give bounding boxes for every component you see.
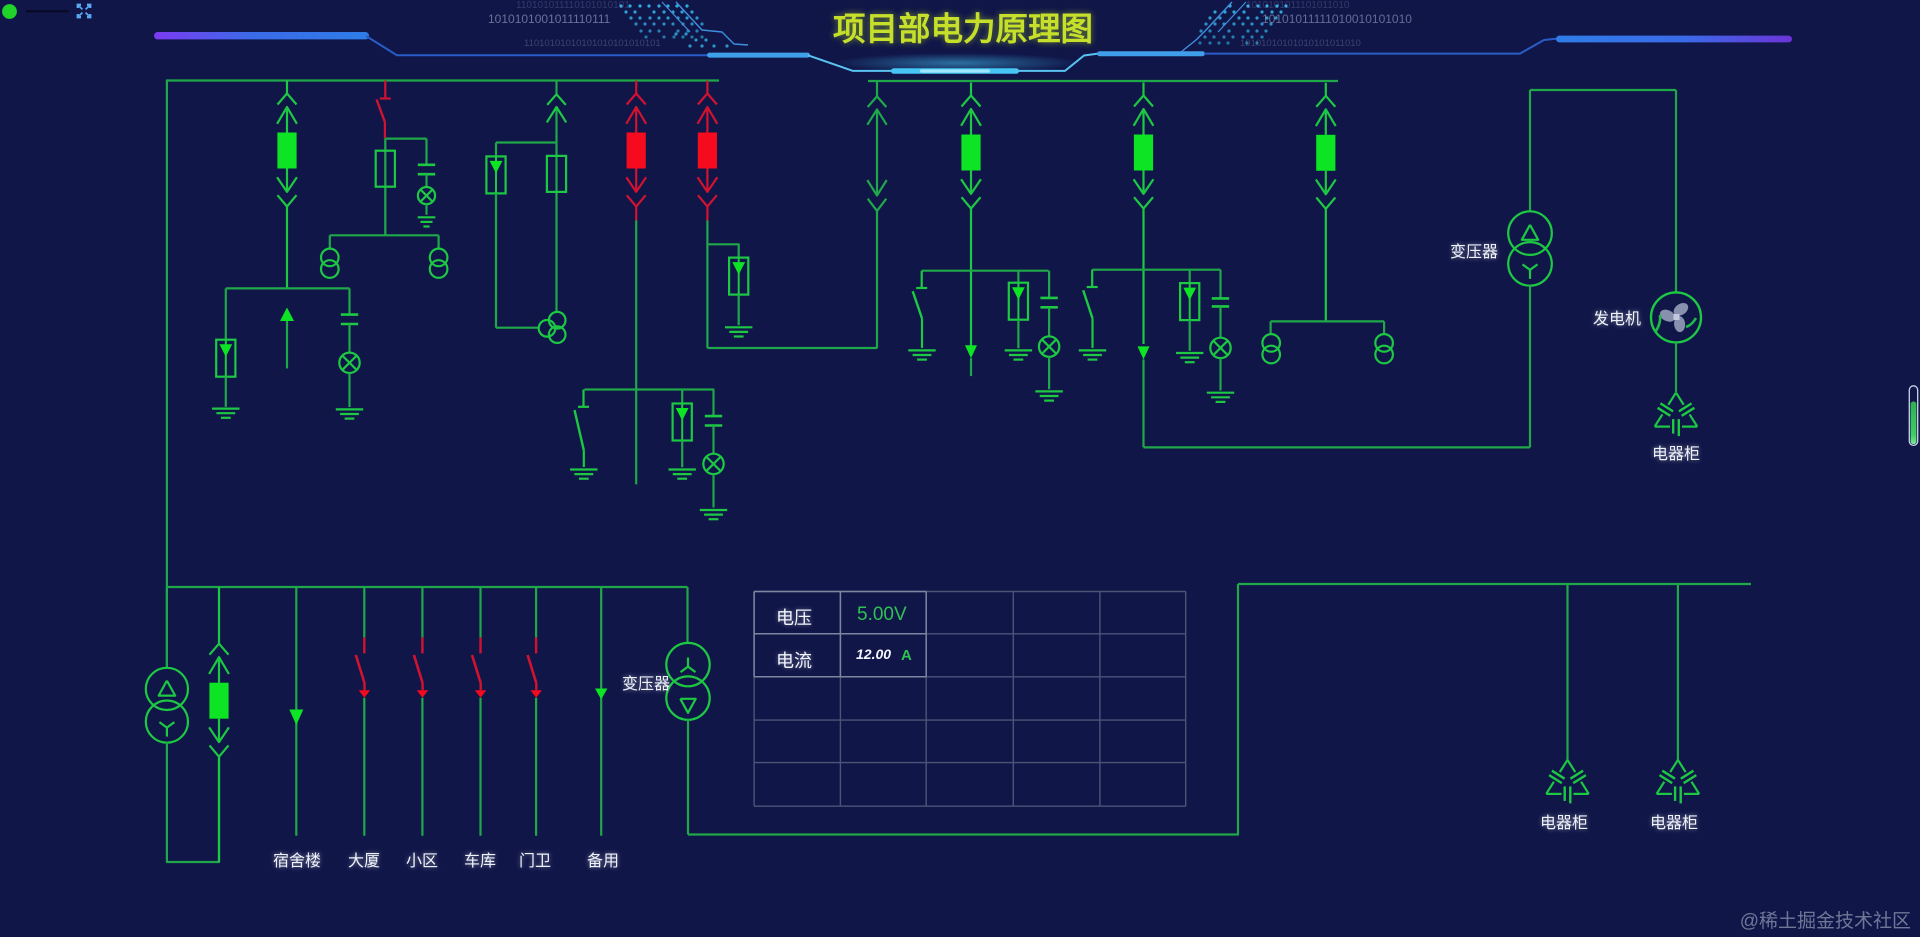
svg-text:A: A <box>901 647 912 664</box>
svg-text:电器柜: 电器柜 <box>1652 445 1700 463</box>
svg-text:电器柜: 电器柜 <box>1650 814 1698 832</box>
svg-text:@稀土掘金技术社区: @稀土掘金技术社区 <box>1740 910 1911 932</box>
svg-text:110101011110101010101: 110101011110101010101 <box>516 0 630 11</box>
svg-text:10101010101010101011010: 10101010101010101011010 <box>1240 38 1361 49</box>
svg-text:发电机: 发电机 <box>1593 310 1641 328</box>
svg-text:变压器: 变压器 <box>622 675 670 693</box>
svg-text:电流: 电流 <box>776 651 812 671</box>
svg-text:门卫: 门卫 <box>519 852 551 870</box>
svg-text:10101011111010010101010: 10101011111010010101010 <box>1262 12 1412 26</box>
svg-text:1010101011101011010: 1010101011101011010 <box>1246 0 1350 11</box>
svg-text:电器柜: 电器柜 <box>1540 814 1588 832</box>
svg-text:备用: 备用 <box>587 852 619 870</box>
svg-text:变压器: 变压器 <box>1450 243 1498 261</box>
svg-text:电压: 电压 <box>776 608 812 628</box>
svg-text:5.00V: 5.00V <box>857 604 907 625</box>
svg-text:11010101010101010101010101: 11010101010101010101010101 <box>524 38 661 49</box>
svg-text:项目部电力原理图: 项目部电力原理图 <box>833 11 1093 47</box>
svg-text:12.00: 12.00 <box>856 646 891 662</box>
svg-text:1010101001011110111: 1010101001011110111 <box>488 12 611 26</box>
svg-text:大厦: 大厦 <box>348 852 380 870</box>
svg-text:宿舍楼: 宿舍楼 <box>273 852 321 870</box>
svg-text:车库: 车库 <box>464 852 496 870</box>
svg-text:小区: 小区 <box>406 852 438 870</box>
